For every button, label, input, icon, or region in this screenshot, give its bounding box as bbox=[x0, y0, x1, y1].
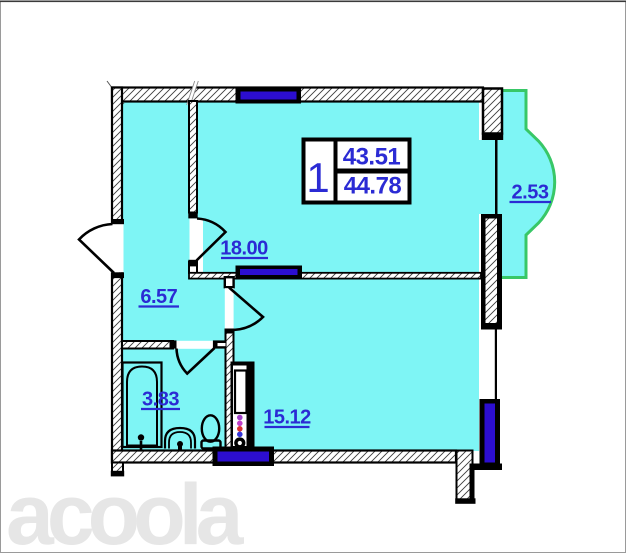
svg-text:18.00: 18.00 bbox=[220, 238, 268, 260]
svg-text:44.78: 44.78 bbox=[344, 173, 402, 200]
svg-text:15.12: 15.12 bbox=[263, 407, 311, 429]
svg-text:3.83: 3.83 bbox=[142, 389, 179, 411]
svg-text:6.57: 6.57 bbox=[140, 286, 177, 308]
svg-text:acoola: acoola bbox=[6, 467, 245, 556]
svg-text:43.51: 43.51 bbox=[343, 144, 401, 171]
svg-text:2.53: 2.53 bbox=[512, 182, 549, 204]
svg-text:1: 1 bbox=[306, 154, 329, 201]
